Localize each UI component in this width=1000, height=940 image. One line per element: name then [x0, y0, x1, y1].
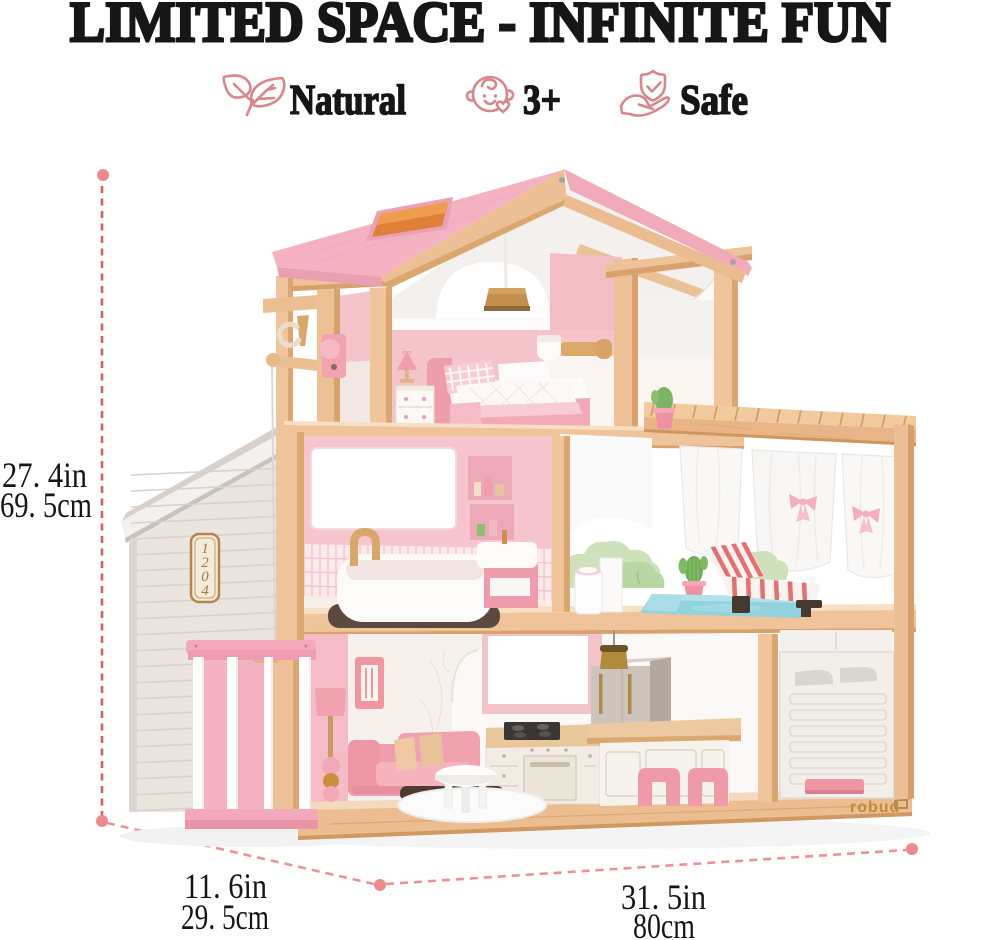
- svg-text:3+: 3+: [523, 78, 561, 124]
- svg-text:robud: robud: [850, 799, 900, 816]
- svg-text:Natural: Natural: [290, 78, 406, 124]
- svg-text:Safe: Safe: [680, 78, 748, 124]
- svg-text:4: 4: [201, 583, 209, 599]
- svg-text:80cm: 80cm: [633, 906, 695, 940]
- svg-text:69. 5cm: 69. 5cm: [0, 485, 92, 525]
- svg-text:29. 5cm: 29. 5cm: [181, 897, 269, 937]
- svg-text:LIMITED SPACE - INFINITE FUN: LIMITED SPACE - INFINITE FUN: [70, 0, 890, 54]
